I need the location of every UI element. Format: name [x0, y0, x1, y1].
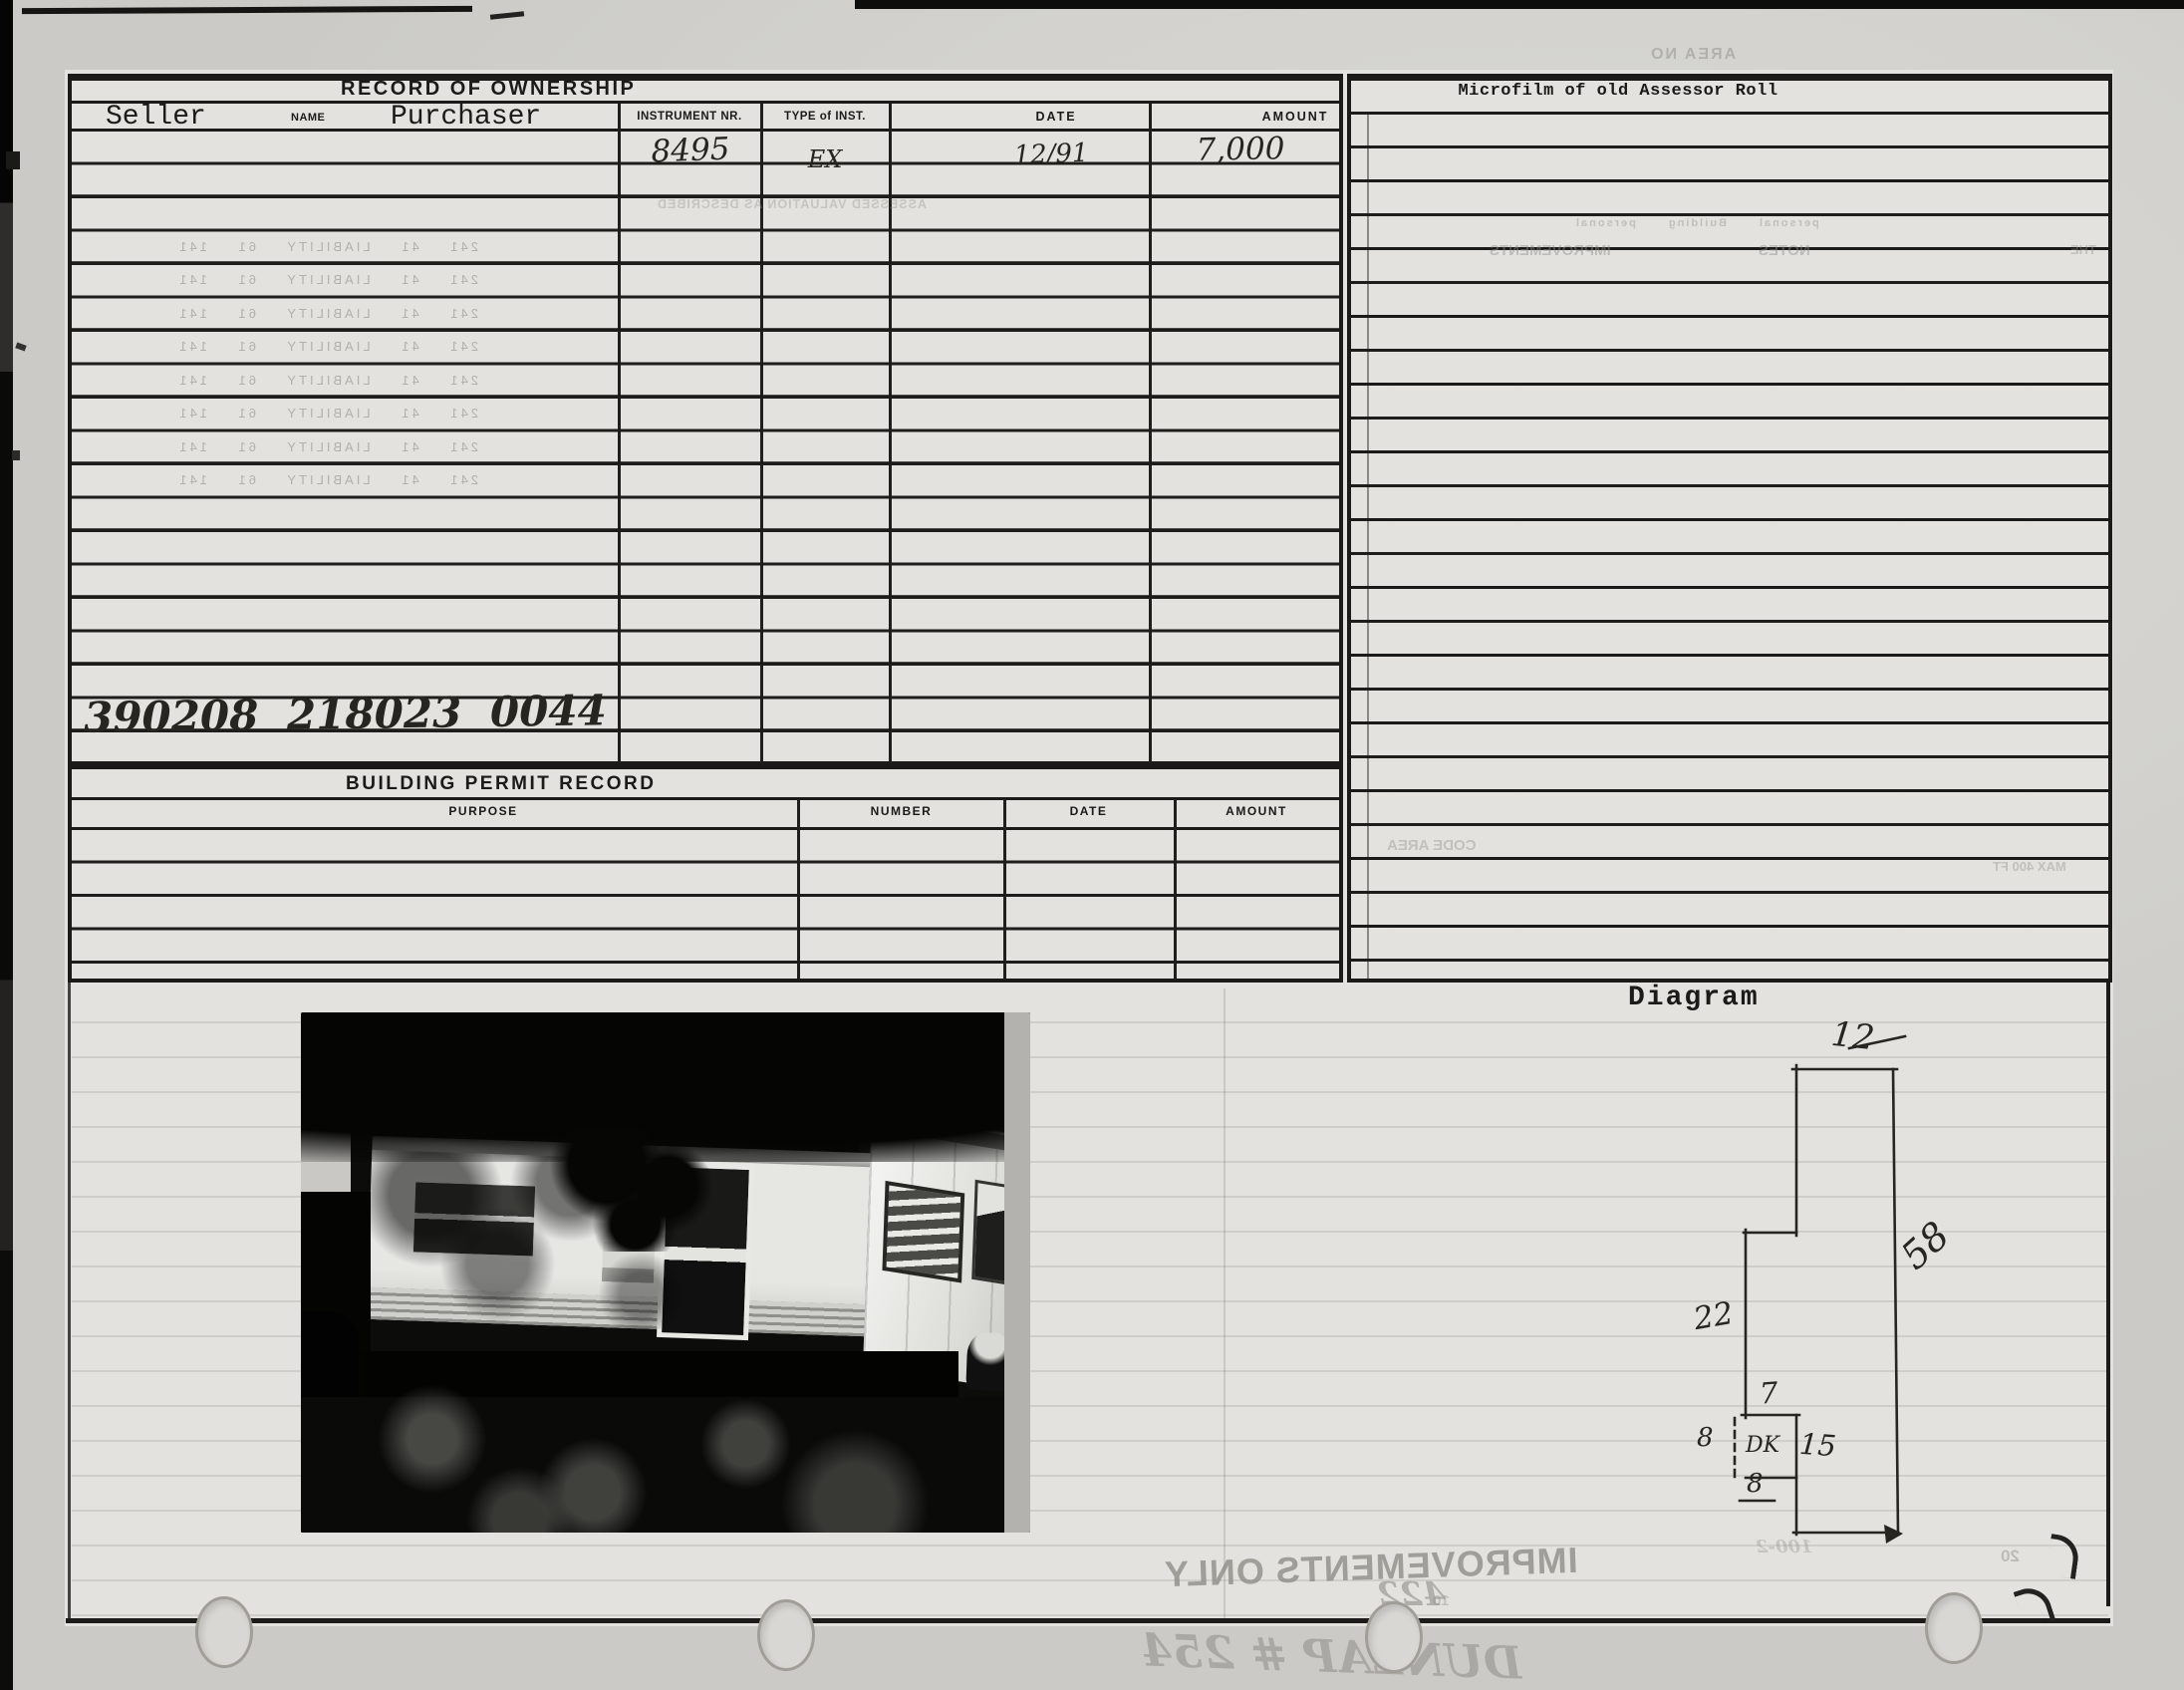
photo-hanging-branch	[550, 1127, 739, 1252]
ownership-name-header: NAME	[291, 112, 325, 124]
permit-purpose-header: PURPOSE	[259, 804, 707, 818]
bleed-ledger-row: 241 41 LIABILITY 61 141	[80, 472, 478, 487]
photo-print-right-margin	[1004, 1012, 1030, 1533]
bleed-ledger-row: 241 41 LIABILITY 61 141	[80, 339, 478, 354]
entry-type-of-inst: EX	[760, 145, 890, 173]
ownership-date-header: DATE	[927, 110, 1186, 124]
bleed-notes: NOTES	[1759, 242, 1810, 259]
scan-dash-mark	[490, 11, 524, 20]
parcel-number: 390208 218023 0044	[84, 686, 607, 741]
bleed-the: THE	[2070, 242, 2096, 257]
entry-date: 12/91	[986, 138, 1117, 172]
permit-title: BUILDING PERMIT RECORD	[72, 773, 1339, 795]
card-left-border-lower	[68, 983, 71, 1620]
microfilm-gutter-line	[1367, 115, 1369, 979]
bleed-num-10: 10	[1433, 1592, 1450, 1609]
permit-date-header: DATE	[1005, 804, 1172, 818]
diagram-right-line	[1893, 1069, 1898, 1535]
permit-amount-header: AMOUNT	[1174, 804, 1339, 818]
diagram-deck-label: DK	[1746, 1433, 1779, 1458]
scan-speck-1	[6, 151, 20, 169]
card-bottom-border	[66, 1618, 2110, 1623]
microfilm-title: Microfilm of old Assessor Roll	[1351, 82, 2108, 101]
bleed-ledger-row: 241 41 LIABILITY 61 141	[80, 306, 478, 321]
diagram-dim-top: 12	[1829, 1014, 1876, 1058]
diagram-dim-deck-width: 8	[1697, 1423, 1714, 1453]
bleed-ledger-row: 241 41 LIABILITY 61 141	[80, 373, 478, 388]
bleed-ledger-row: 241 41 LIABILITY 61 141	[80, 239, 478, 254]
scan-edge-left	[0, 0, 13, 1690]
bleed-ledger-row: 241 41 LIABILITY 61 141	[80, 272, 478, 287]
photo-window-jalousie	[882, 1181, 964, 1283]
property-photo	[301, 1012, 1030, 1533]
entry-amount: 7,000	[1161, 131, 1321, 169]
bleed-improvements: IMPROVEMENTS	[1490, 242, 1611, 259]
diagram-sketch	[1554, 996, 2112, 1594]
bleed-vertical-line	[1224, 988, 1226, 1620]
bleed-ledger-row: 241 41 LIABILITY 61 141	[80, 439, 478, 454]
punch-hole-3	[1365, 1601, 1423, 1673]
bleed-max-note: MAX 400 FT	[1993, 859, 2066, 874]
diagram-dim-step: 7	[1759, 1375, 1779, 1410]
diagram-dim-deck-height: 15	[1798, 1427, 1837, 1463]
scan-edge-top-left	[22, 6, 472, 14]
permit-title-rule	[72, 797, 1339, 800]
diagram-dim-deck-bottom: 8	[1747, 1469, 1764, 1499]
punch-hole-1	[195, 1596, 253, 1668]
bleed-handwritten-name: DUNLAP # 254	[1140, 1623, 1522, 1689]
scan-edge-top-right	[855, 0, 2184, 9]
punch-hole-2	[757, 1599, 815, 1671]
scan-speck-2	[15, 342, 26, 351]
ownership-type-header: TYPE of INST.	[762, 111, 888, 123]
bleed-mini-row: personal Building personal	[1574, 217, 1819, 229]
bleed-code-area: CODE AREA	[1387, 837, 1476, 854]
diagram-dim-left: 22	[1691, 1295, 1736, 1337]
photo-ground-dapples	[301, 1371, 1030, 1533]
permit-number-header: NUMBER	[799, 804, 1003, 818]
entry-instrument-nr: 8495	[625, 131, 755, 171]
permit-ruled-rows	[72, 830, 1339, 979]
bleed-num-20: 20	[2001, 1547, 2020, 1566]
bleed-diagram-note: 100-2	[1756, 1537, 1813, 1557]
ownership-instrument-header: INSTRUMENT NR.	[620, 111, 759, 123]
scanned-assessor-card: RECORD OF OWNERSHIP Seller NAME Purchase…	[0, 0, 2184, 1690]
bleed-ownership-line: ASSESSED VALUATION AS DESCRIBED	[588, 197, 927, 211]
scan-speck-3	[12, 450, 20, 460]
punch-hole-4	[1925, 1592, 1983, 1664]
ownership-title: RECORD OF OWNERSHIP	[72, 78, 1339, 101]
bleed-ledger-row: 241 41 LIABILITY 61 141	[80, 406, 478, 421]
bleed-area-no: AREA NO	[1649, 46, 1736, 64]
diagram-arrowhead	[1884, 1525, 1903, 1544]
